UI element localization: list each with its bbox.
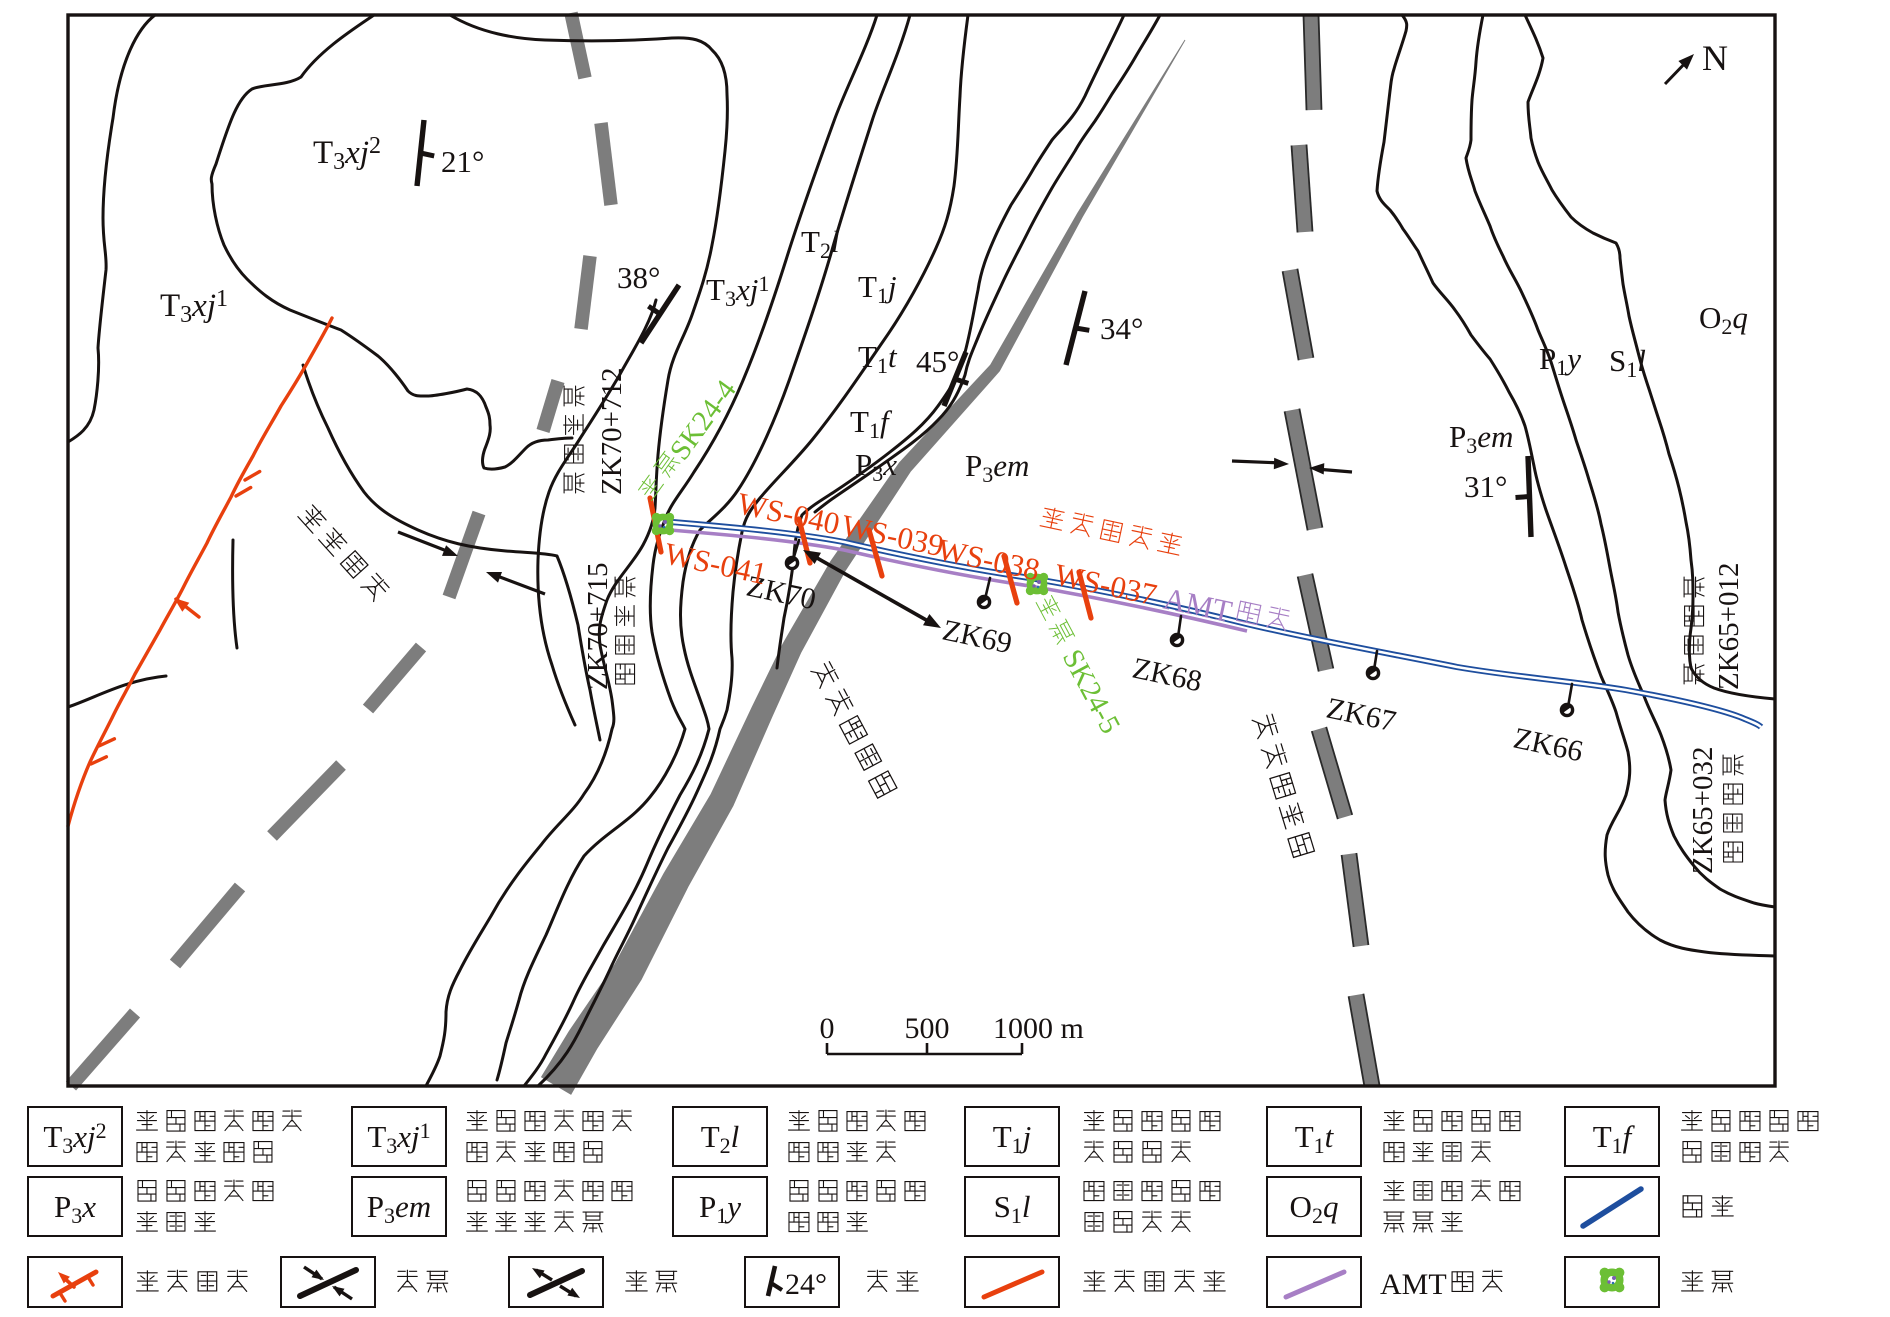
svg-text:ZK70+715: ZK70+715 bbox=[582, 562, 614, 690]
svg-text:45°: 45° bbox=[916, 344, 959, 379]
svg-text:AMT: AMT bbox=[1380, 1268, 1447, 1301]
svg-text:P3em: P3em bbox=[367, 1189, 431, 1228]
svg-text:P3em: P3em bbox=[1449, 419, 1513, 458]
svg-text:ZK65+012: ZK65+012 bbox=[1713, 562, 1745, 690]
svg-text:0: 0 bbox=[820, 1012, 835, 1045]
svg-text:500: 500 bbox=[905, 1012, 950, 1045]
svg-text:ZK65+032: ZK65+032 bbox=[1687, 746, 1719, 874]
svg-text:24°: 24° bbox=[785, 1268, 827, 1301]
svg-text:38°: 38° bbox=[617, 260, 660, 295]
svg-text:1000 m: 1000 m bbox=[993, 1012, 1084, 1045]
svg-text:N: N bbox=[1702, 38, 1728, 78]
svg-text:34°: 34° bbox=[1100, 311, 1143, 346]
svg-text:21°: 21° bbox=[441, 144, 484, 179]
svg-text:31°: 31° bbox=[1464, 469, 1507, 504]
svg-text:ZK70+712: ZK70+712 bbox=[596, 367, 628, 495]
svg-text:P3em: P3em bbox=[965, 448, 1029, 487]
